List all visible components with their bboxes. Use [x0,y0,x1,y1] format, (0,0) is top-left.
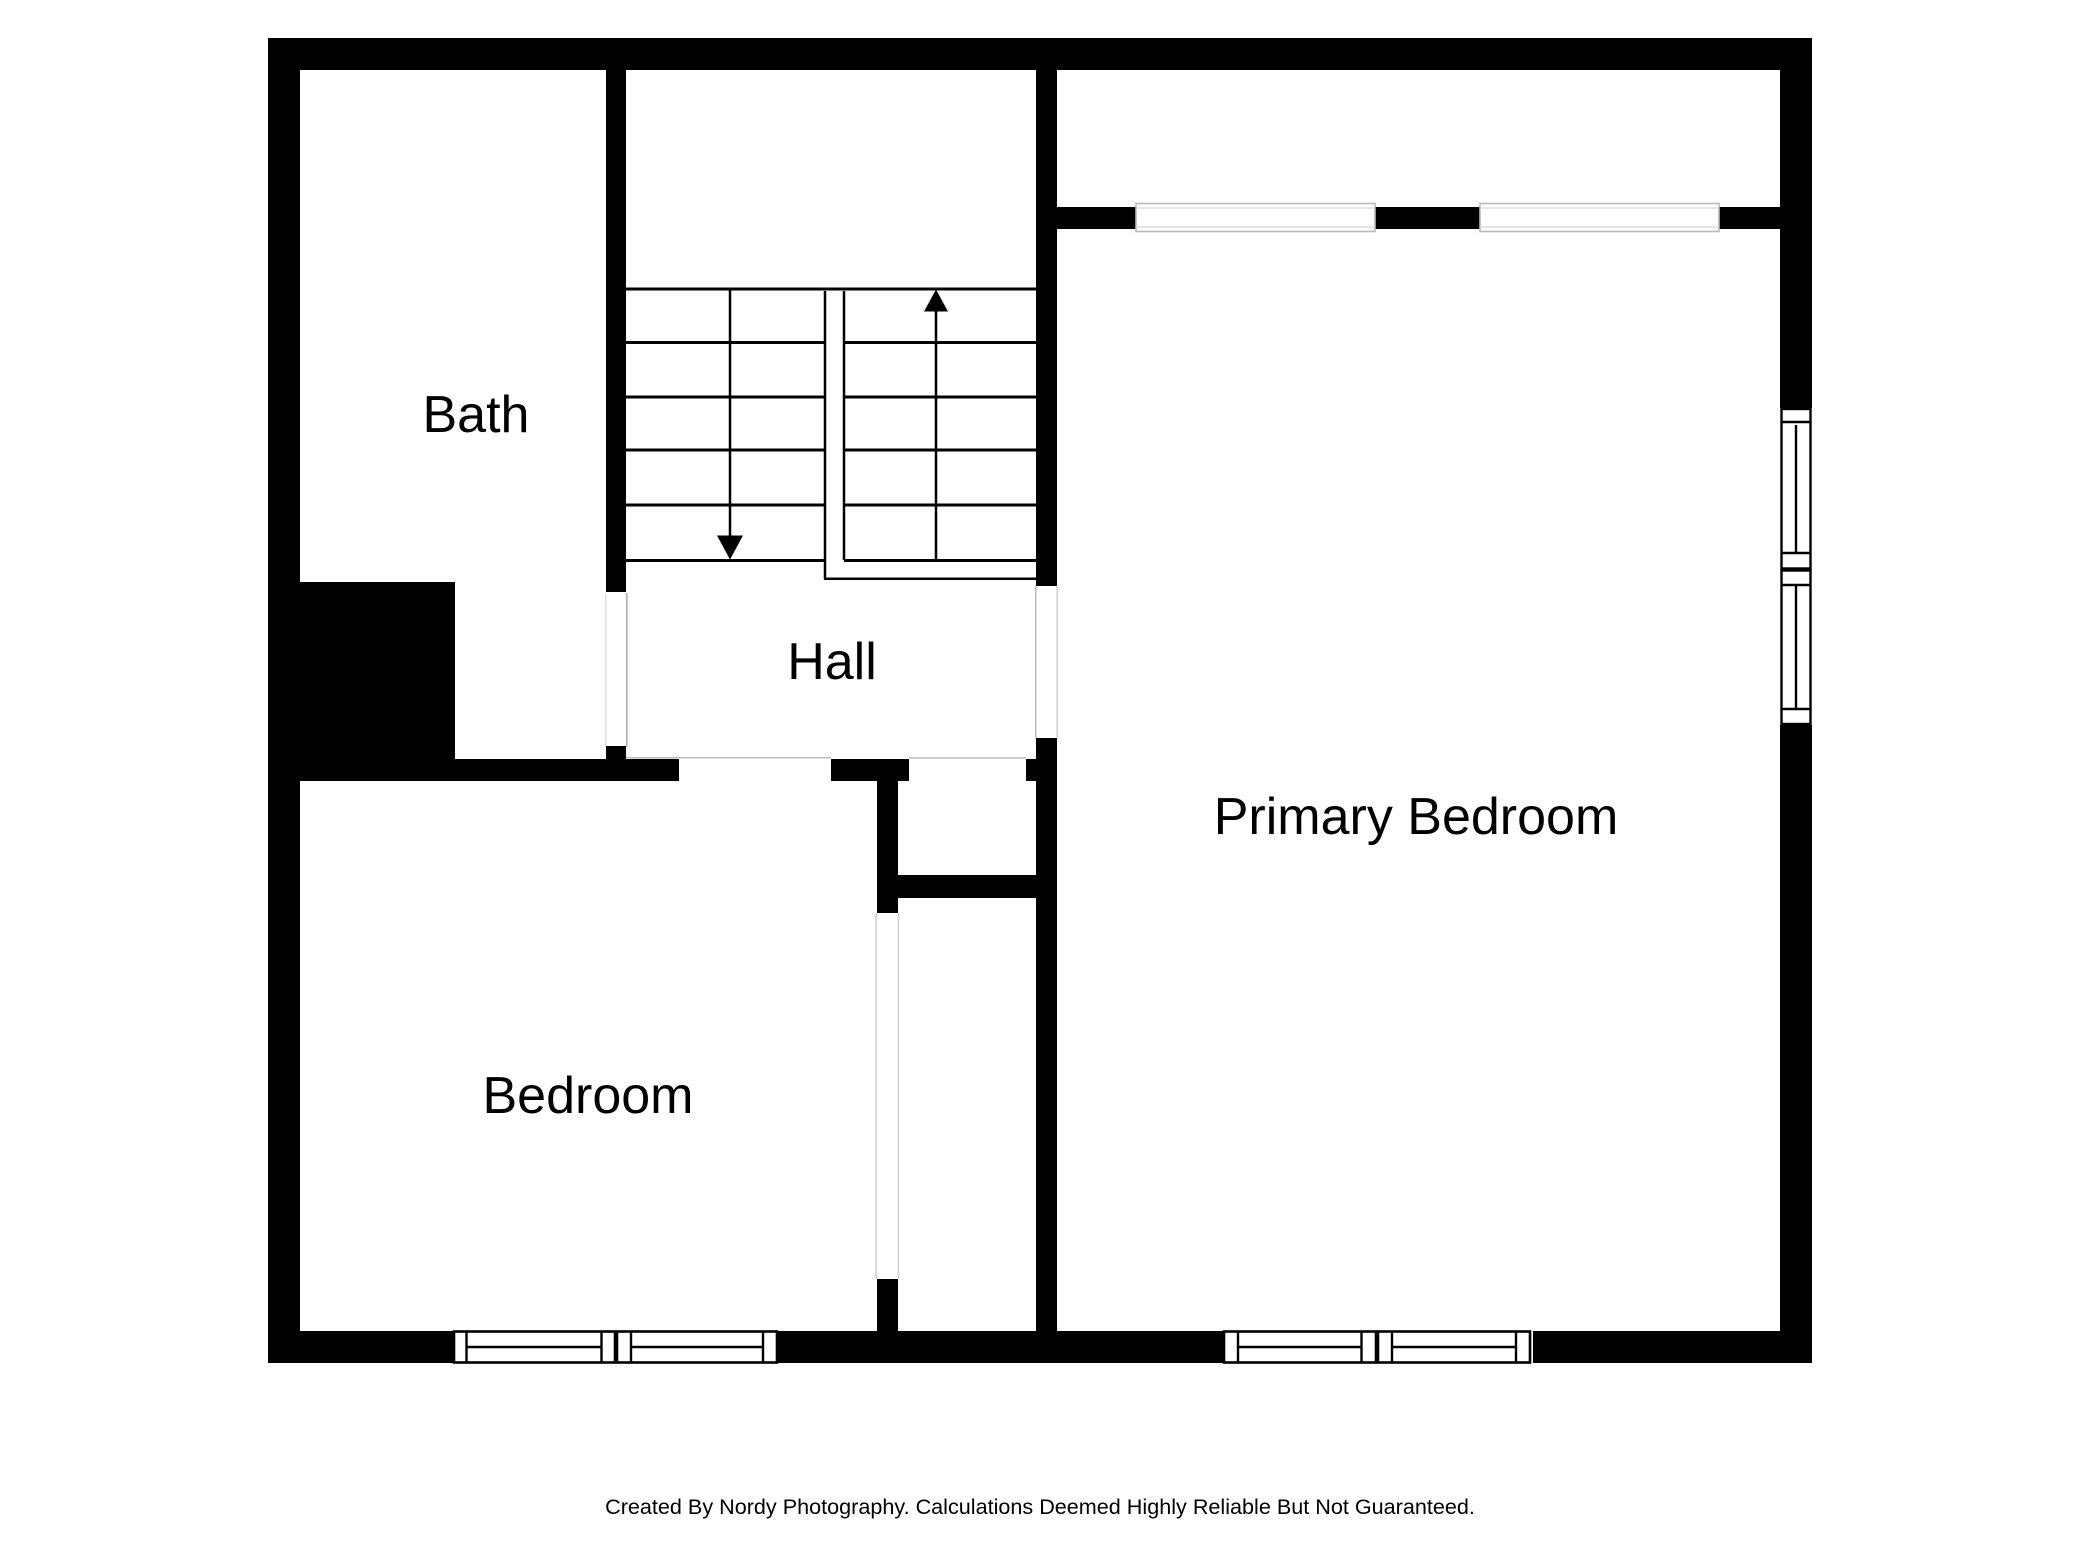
svg-text:Hall: Hall [787,633,877,691]
svg-text:Bath: Bath [423,386,530,444]
svg-text:Bedroom: Bedroom [483,1067,694,1125]
svg-text:Created By Nordy Photography.: Created By Nordy Photography. Calculatio… [605,1494,1475,1519]
svg-text:Primary Bedroom: Primary Bedroom [1214,788,1619,846]
